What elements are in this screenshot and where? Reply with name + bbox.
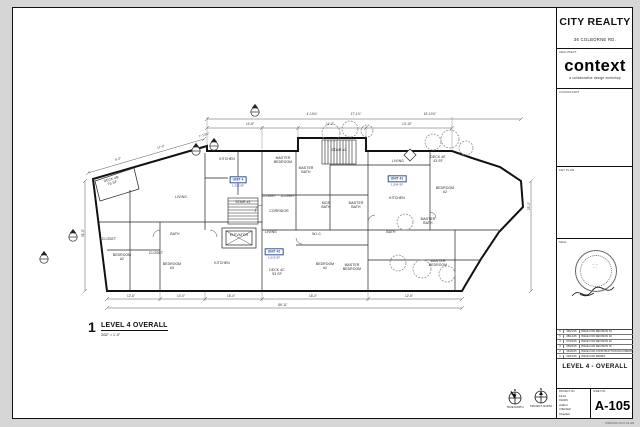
room-label: CLOSET <box>262 195 276 199</box>
client-name: CITY REALTY <box>556 16 634 28</box>
revision-desc: ISSUE FOR REVISION 02 <box>580 340 633 343</box>
room-label: CLOSET <box>281 195 295 199</box>
room-label: KITCHEN <box>389 197 405 201</box>
room-label: STAIR #2 <box>331 149 346 153</box>
room-label: KIDS BATH <box>321 202 330 210</box>
sheet-number: A-105 <box>592 398 633 413</box>
dimension-text: 14'-8" <box>246 122 254 126</box>
revision-desc: ISSUE FOR CONSTRUCTION DOCUMENTS <box>580 350 633 353</box>
dimension-text: 12'-6" <box>405 294 413 298</box>
dimension-text: 18'-0" <box>309 294 317 298</box>
room-label: MASTER BEDROOM <box>429 260 447 268</box>
revision-table: 6 09/21/15 ISSUE FOR REVISION 04 5 08/14… <box>557 329 633 359</box>
project-address: 36 COLBORNE RD. <box>556 37 634 42</box>
dimension-text: 86'-11" <box>278 303 288 307</box>
unit-name: UNIT 41 <box>388 175 407 182</box>
seal-text: • • • • •• • • <box>575 264 615 270</box>
true-north-label: TRUE NORTH <box>507 406 524 409</box>
revision-no: 3 <box>557 345 564 348</box>
titleblock-rule <box>557 238 633 239</box>
room-label: ELEVATOR <box>230 234 248 238</box>
checked-value: Checker <box>559 412 570 416</box>
dimension-text: 12'-6" <box>127 294 135 298</box>
room-label: LIVING <box>175 196 187 200</box>
view-number: 1 <box>88 319 96 335</box>
revision-date: 07/02/15 <box>564 340 580 343</box>
room-label: CLOSET <box>102 238 116 242</box>
unit-name: UNIT 4 <box>230 176 247 183</box>
room-label: MASTER BATH <box>421 218 436 226</box>
unit-tag: UNIT 4 1,313 SF <box>230 176 247 187</box>
consultant-section-label: CONSULTANT <box>559 90 580 94</box>
fields-divider <box>590 388 591 419</box>
revision-desc: ISSUE FOR REVISION 01 <box>580 345 633 348</box>
keyplan-section-label: KEY PLAN <box>559 168 574 172</box>
dimension-text: 15'-10⅞" <box>424 112 437 116</box>
room-label: CORRIDOR <box>269 210 288 214</box>
room-label: CLOSET <box>149 252 163 256</box>
view-title: LEVEL 4 OVERALL <box>101 322 168 331</box>
project-no-value: 1414 <box>559 394 566 398</box>
project-north-label: PROJECT NORTH <box>530 405 552 408</box>
revision-no: 2 <box>557 350 564 353</box>
sheet-title: LEVEL 4 - OVERALL <box>556 363 634 370</box>
dimension-text: 15'-4" <box>227 294 235 298</box>
revision-date: 04/30/15 <box>564 350 580 353</box>
firm-tagline: a collaborative design workshop <box>556 76 634 80</box>
drawing-page: DECK 4B 75 SF KITCHEN LIVING STAIR #1 MA… <box>0 0 640 427</box>
unit-area: 1,019 SF <box>268 256 280 260</box>
dimension-text: 17'-1⅞" <box>351 112 362 116</box>
unit-area: 1,313 SF <box>232 184 244 188</box>
drawn-value: Author <box>559 403 568 407</box>
revision-no: 1 <box>557 355 564 358</box>
firm-logo: context <box>556 57 634 76</box>
room-label: MASTER BATH <box>299 167 314 175</box>
sheet-border <box>12 7 633 419</box>
titleblock-rule <box>557 388 633 389</box>
room-label: MASTER BEDROOM <box>343 264 361 272</box>
room-label: MASTER BEDROOM <box>274 157 292 165</box>
seal-section-label: SEAL <box>559 240 567 244</box>
project-north-n: N <box>540 387 542 391</box>
revision-desc: ISSUE FOR REVISION 04 <box>580 330 633 333</box>
revision-no: 4 <box>557 340 564 343</box>
room-label: BEDROOM #2 <box>316 263 334 271</box>
revision-no: 5 <box>557 335 564 338</box>
revision-date: 05/18/15 <box>564 345 580 348</box>
dimension-text: 10'-0" <box>177 294 185 298</box>
room-label: BEDROOM #3 <box>163 263 181 271</box>
dimension-text: 31'-0" <box>81 229 85 237</box>
architect-section-label: ARCHITECT <box>559 50 577 54</box>
revision-date: 09/21/15 <box>564 330 580 333</box>
sheet-no-label: SHEET NO. <box>593 390 606 393</box>
unit-tag: UNIT 42 1,019 SF <box>265 248 284 259</box>
professional-seal-inner <box>580 255 612 287</box>
room-label: LIVING <box>392 160 404 164</box>
room-label: W.I.C. <box>312 233 322 237</box>
dimension-text: 13'-10" <box>402 122 412 126</box>
room-label: BEDROOM #2 <box>113 254 131 262</box>
revision-desc: ISSUE FOR PERMIT <box>580 355 633 358</box>
room-label: BEDROOM #2 <box>436 187 454 195</box>
room-label: DECK 4E 43 SF <box>430 156 445 164</box>
revision-no: 6 <box>557 330 564 333</box>
plot-stamp: 4/30/2015 10:07:42 AM <box>520 421 634 425</box>
revision-date: 03/15/15 <box>564 355 580 358</box>
dimension-text: 4'-10¾" <box>307 112 318 116</box>
room-label: DECK 4C 93 SF <box>269 269 284 277</box>
true-north-n: N <box>514 388 516 392</box>
unit-tag: UNIT 41 1,504 SF <box>388 175 407 186</box>
revision-row: 1 03/15/15 ISSUE FOR PERMIT <box>557 354 633 358</box>
room-label: LIVING <box>265 231 277 235</box>
room-label: KITCHEN <box>214 262 230 266</box>
room-label: KITCHEN <box>219 158 235 162</box>
room-label: BATH <box>386 231 395 235</box>
revision-desc: ISSUE FOR REVISION 03 <box>580 335 633 338</box>
room-label: BATH <box>170 233 179 237</box>
dimension-text: 11'-2" <box>326 122 334 126</box>
revision-date: 08/14/15 <box>564 335 580 338</box>
room-label: STAIR #1 <box>235 201 250 205</box>
unit-area: 1,504 SF <box>391 183 403 187</box>
view-scale: 3/32" = 1'-0" <box>101 333 120 337</box>
unit-name: UNIT 42 <box>265 248 284 255</box>
dimension-text: 25'-2" <box>527 202 531 210</box>
room-label: MASTER BATH <box>349 202 364 210</box>
